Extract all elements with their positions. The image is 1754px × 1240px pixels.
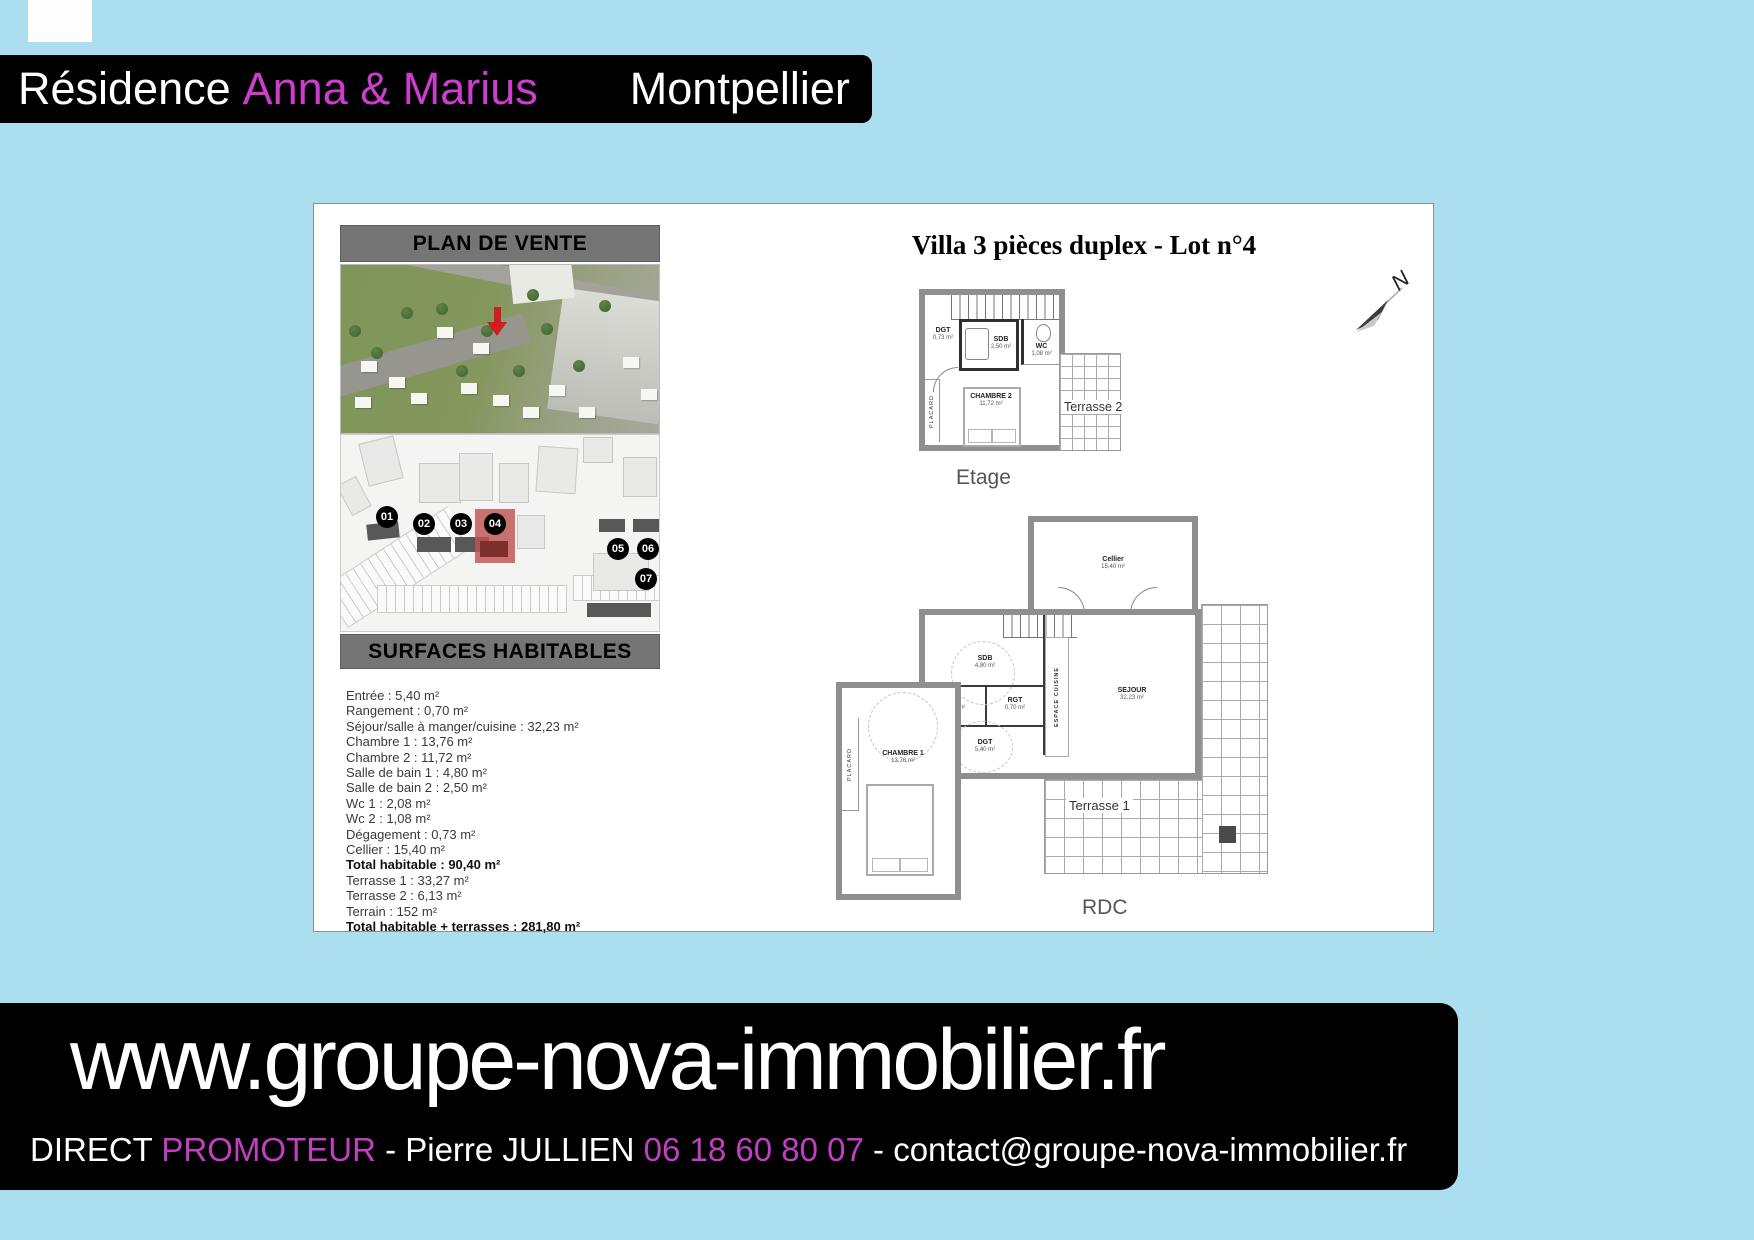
bed-icon	[866, 784, 934, 876]
lot-badge-02: 02	[413, 513, 435, 535]
website-url[interactable]: www.groupe-nova-immobilier.fr	[70, 1011, 1400, 1123]
room-label: SDB	[957, 655, 1013, 663]
lot-building	[587, 603, 651, 617]
lot-badge-06: 06	[637, 538, 659, 560]
contact-line: DIRECT PROMOTEUR - Pierre JULLIEN 06 18 …	[30, 1131, 1407, 1207]
room-sdb: SDB 4,80 m²	[957, 655, 1013, 670]
room-label: SEJOUR	[1097, 687, 1167, 695]
lot-badge-04: 04	[484, 513, 506, 535]
surface-item: Terrasse 2 : 6,13 m²	[346, 888, 658, 903]
render-house	[641, 389, 657, 400]
surfaces-list: Entrée : 5,40 m² Rangement : 0,70 m² Séj…	[346, 688, 658, 935]
room-area: 15,40 m²	[1083, 564, 1143, 571]
room-label: Cellier	[1083, 556, 1143, 564]
terrasse-1-label: Terrasse 1	[1066, 798, 1133, 813]
render-house	[437, 327, 453, 338]
shower-icon	[965, 328, 989, 360]
flyer-page: { "colors": { "background": "#ABDFF0", "…	[0, 0, 1754, 1240]
corner-artifact	[28, 0, 92, 42]
rdc-caption: RDC	[1082, 896, 1128, 920]
surface-item: Terrasse 1 : 33,27 m²	[346, 873, 658, 888]
surface-item: Cellier : 15,40 m²	[346, 842, 658, 857]
room-area: 0,70 m²	[991, 705, 1039, 712]
render-tree	[527, 289, 539, 301]
surfaces-habitables-header: SURFACES HABITABLES	[340, 634, 660, 669]
render-house	[461, 383, 477, 394]
surface-item: Rangement : 0,70 m²	[346, 703, 658, 718]
render-tree	[401, 307, 413, 319]
room-wc: WC 1,08 m²	[1021, 319, 1059, 365]
direct-label: DIRECT	[30, 1131, 161, 1168]
highlight-arrow-icon	[487, 322, 507, 336]
svg-text:N: N	[1386, 268, 1414, 295]
site-plan-map: 01 02 03 04 05 06 07	[340, 434, 660, 632]
stairs	[951, 295, 1059, 320]
pillow	[872, 858, 900, 872]
separator: -	[376, 1131, 405, 1168]
room-label: WC	[1024, 343, 1059, 351]
espace-cuisine: ESPACE CUISINE	[1045, 637, 1069, 757]
placard-label: PLACARD	[929, 395, 935, 428]
render-tree	[349, 325, 361, 337]
parking-strip	[377, 585, 567, 613]
room-label: RGT	[991, 697, 1039, 705]
contact-name: Pierre JULLIEN	[405, 1131, 643, 1168]
render-building	[509, 264, 575, 304]
room-label-wrap: Cellier 15,40 m²	[1083, 556, 1143, 571]
rdc-main-floorplan: SDB 4,80 m² WC 2,08 m² RGT 0,70 m² DGT 5…	[919, 609, 1201, 779]
surface-item: Salle de bain 2 : 2,50 m²	[346, 780, 658, 795]
surface-item: Dégagement : 0,73 m²	[346, 827, 658, 842]
render-tree	[456, 365, 468, 377]
aerial-render-image	[340, 264, 660, 434]
surface-item: Wc 1 : 2,08 m²	[346, 796, 658, 811]
room-area: 1,08 m²	[1024, 351, 1059, 358]
lot-building	[480, 541, 508, 557]
toilet-icon	[1036, 324, 1051, 342]
render-house	[355, 397, 371, 408]
building	[535, 446, 578, 495]
surface-item: Salle de bain 1 : 4,80 m²	[346, 765, 658, 780]
pillow	[900, 858, 928, 872]
plan-de-vente-header: PLAN DE VENTE	[340, 225, 660, 262]
header-residence: Résidence	[18, 63, 231, 115]
room-sejour: SEJOUR 32,23 m²	[1097, 687, 1167, 702]
room-area: 5,40 m²	[957, 747, 1013, 754]
footer-banner: www.groupe-nova-immobilier.fr DIRECT PRO…	[0, 1003, 1458, 1190]
bed-icon	[963, 387, 1021, 447]
pillow	[968, 429, 992, 443]
room-label: ESPACE CUISINE	[1054, 667, 1060, 727]
stairs	[1003, 615, 1077, 638]
surface-total-habitable: Total habitable : 90,40 m²	[346, 857, 658, 872]
header-city: Montpellier	[630, 63, 850, 115]
render-house	[361, 361, 377, 372]
room-dgt: DGT 5,40 m²	[957, 739, 1013, 754]
header-residence-name: Anna & Marius	[243, 63, 538, 115]
render-house	[579, 407, 595, 418]
room-area: 13,76 m²	[868, 758, 938, 765]
terrasse-1-tiles	[1044, 779, 1202, 874]
etage-floorplan: DGT 0,73 m² SDB 2,50 m² WC 1,08 m² CHAMB…	[919, 289, 1065, 451]
room-sdb: SDB 2,50 m²	[959, 319, 1019, 371]
render-tree	[599, 300, 611, 312]
room-label: CHAMBRE 1	[868, 750, 938, 758]
render-house	[473, 343, 489, 354]
surface-item: Terrain : 152 m²	[346, 904, 658, 919]
room-label: SDB	[988, 336, 1014, 344]
render-house	[493, 395, 509, 406]
render-tree	[436, 303, 448, 315]
render-house	[523, 407, 539, 418]
room-chambre1: CHAMBRE 1 13,76 m²	[868, 750, 938, 765]
lot-badge-07: 07	[635, 568, 657, 590]
placard: PLACARD	[925, 379, 940, 442]
pillow	[992, 429, 1016, 443]
etage-caption: Etage	[956, 466, 1011, 490]
lot-building	[599, 519, 625, 532]
render-house	[411, 393, 427, 404]
building	[623, 457, 657, 497]
room-area: 32,23 m²	[1097, 695, 1167, 702]
lot-badge-01: 01	[376, 506, 398, 528]
lot-badge-05: 05	[607, 538, 629, 560]
north-arrow-icon: N	[1352, 268, 1422, 340]
surface-item: Wc 2 : 1,08 m²	[346, 811, 658, 826]
render-tree	[573, 360, 585, 372]
lot-badge-03: 03	[450, 513, 472, 535]
phone-number[interactable]: 06 18 60 80 07	[644, 1131, 864, 1168]
surface-item: Entrée : 5,40 m²	[346, 688, 658, 703]
building	[499, 463, 529, 503]
rdc-cellier: Cellier 15,40 m²	[1028, 516, 1198, 618]
room-label-wrap: SDB 2,50 m²	[988, 336, 1014, 351]
render-tree	[541, 323, 553, 335]
lot-building	[417, 537, 451, 552]
building	[459, 453, 493, 501]
render-house	[549, 385, 565, 396]
rdc-chambre1-wing: PLACARD CHAMBRE 1 13,76 m²	[836, 682, 961, 900]
terrasse-feature-square	[1219, 826, 1236, 843]
room-rgt: RGT 0,70 m²	[991, 697, 1039, 712]
room-area: 2,50 m²	[988, 344, 1014, 351]
flyer-panel: PLAN DE VENTE	[313, 203, 1434, 932]
lot-building	[633, 519, 659, 532]
surface-item: Chambre 1 : 13,76 m²	[346, 734, 658, 749]
room-dgt: DGT 0,73 m²	[927, 327, 959, 342]
surface-total-terrasses: Total habitable + terrasses : 281,80 m²	[346, 919, 658, 934]
room-label: DGT	[957, 739, 1013, 747]
surface-item: Séjour/salle à manger/cuisine : 32,23 m²	[346, 719, 658, 734]
header-banner: Résidence Anna & Marius Montpellier	[0, 55, 872, 123]
placard-label: PLACARD	[847, 748, 853, 781]
contact-email[interactable]: contact@groupe-nova-immobilier.fr	[893, 1131, 1407, 1168]
surface-item: Chambre 2 : 11,72 m²	[346, 750, 658, 765]
terrasse-2-label: Terrasse 2	[1061, 400, 1125, 414]
promoteur-label: PROMOTEUR	[161, 1131, 376, 1168]
placard: PLACARD	[842, 718, 859, 811]
render-tree	[513, 365, 525, 377]
building	[517, 515, 545, 549]
building	[583, 437, 613, 463]
render-house	[623, 357, 639, 368]
room-label-wrap: WC 1,08 m²	[1024, 343, 1059, 358]
room-label: DGT	[927, 327, 959, 335]
highlight-arrow-icon	[494, 307, 501, 322]
villa-title: Villa 3 pièces duplex - Lot n°4	[874, 230, 1294, 261]
render-tree	[371, 347, 383, 359]
render-house	[389, 377, 405, 388]
room-area: 0,73 m²	[927, 335, 959, 342]
building	[419, 463, 461, 503]
room-area: 4,80 m²	[957, 663, 1013, 670]
separator: -	[864, 1131, 893, 1168]
building	[358, 435, 404, 486]
